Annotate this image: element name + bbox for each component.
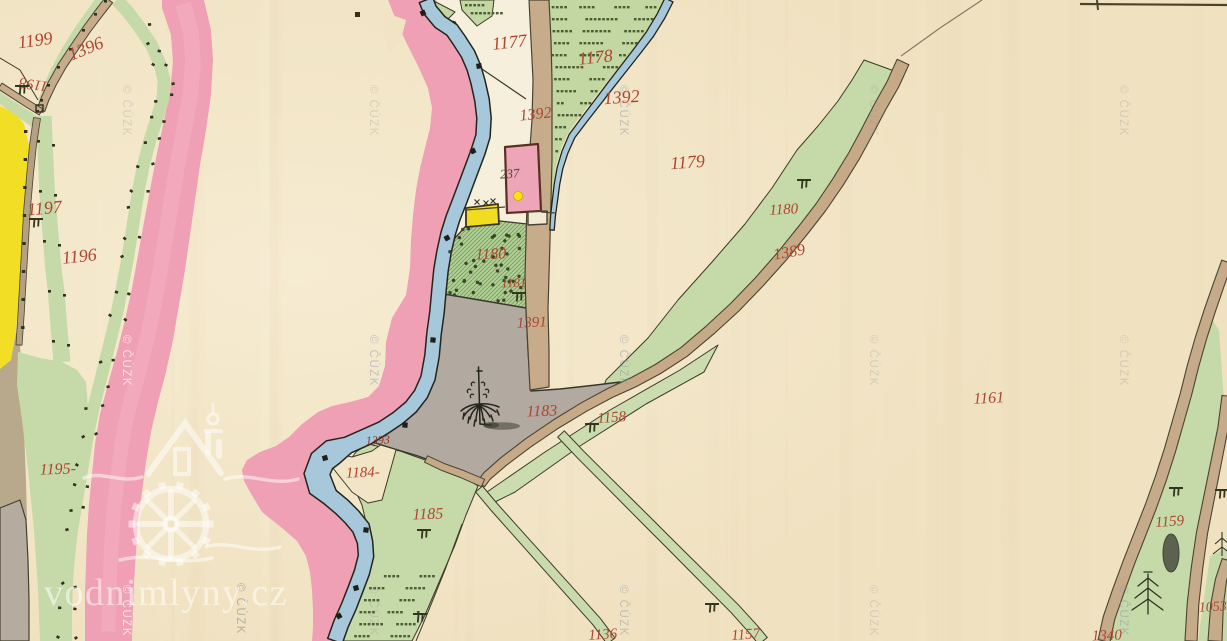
svg-text:1177: 1177 [491, 30, 529, 54]
svg-text:1053: 1053 [1198, 599, 1227, 615]
svg-text:1184-: 1184- [346, 464, 380, 481]
svg-text:1195-: 1195- [39, 460, 76, 478]
svg-text:1197: 1197 [26, 196, 63, 219]
svg-text:1392: 1392 [519, 104, 553, 124]
svg-text:© ČÚZK: © ČÚZK [367, 335, 380, 387]
svg-text:1180: 1180 [769, 201, 799, 219]
svg-text:© ČÚZK: © ČÚZK [120, 335, 133, 387]
svg-text:© ČÚZK: © ČÚZK [367, 585, 380, 637]
svg-text:1196: 1196 [61, 244, 98, 268]
svg-text:1178: 1178 [577, 45, 614, 69]
svg-text:1391: 1391 [516, 314, 547, 332]
svg-text:© ČÚZK: © ČÚZK [867, 85, 880, 137]
svg-text:© ČÚZK: © ČÚZK [1117, 85, 1130, 137]
svg-text:© ČÚZK: © ČÚZK [617, 585, 630, 637]
svg-text:© ČÚZK: © ČÚZK [120, 85, 133, 137]
svg-text:1179: 1179 [670, 151, 706, 173]
svg-text:1185: 1185 [412, 505, 443, 523]
svg-text:237: 237 [499, 165, 520, 181]
svg-text:1136: 1136 [588, 626, 618, 641]
svg-text:1159: 1159 [1155, 513, 1185, 531]
svg-text:1161: 1161 [973, 389, 1005, 408]
svg-text:© ČÚZK: © ČÚZK [1117, 585, 1130, 637]
svg-text:1157: 1157 [731, 626, 762, 641]
svg-text:© ČÚZK: © ČÚZK [367, 85, 380, 137]
svg-text:© ČÚZK: © ČÚZK [867, 585, 880, 637]
svg-text:© ČÚZK: © ČÚZK [1117, 335, 1130, 387]
svg-text:© ČÚZK: © ČÚZK [867, 335, 880, 387]
svg-text:1158: 1158 [597, 409, 627, 427]
svg-text:vodnimlyny.cz: vodnimlyny.cz [44, 572, 288, 614]
svg-text:© ČÚZK: © ČÚZK [617, 335, 630, 387]
svg-text:1180: 1180 [475, 245, 506, 263]
svg-text:1183: 1183 [526, 402, 557, 420]
svg-text:© ČÚZK: © ČÚZK [617, 85, 630, 137]
svg-text:1181: 1181 [501, 275, 527, 291]
svg-text:1393: 1393 [365, 432, 390, 447]
